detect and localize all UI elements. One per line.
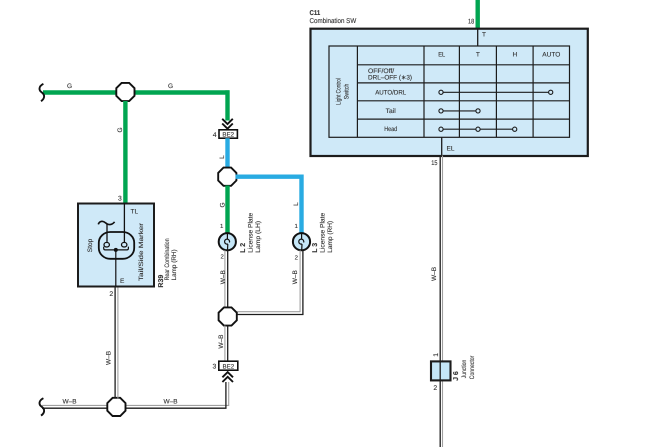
svg-text:Lamp (RH): Lamp (RH) <box>171 249 178 280</box>
svg-text:1: 1 <box>433 353 440 357</box>
svg-text:AUTO: AUTO <box>542 52 560 59</box>
svg-text:1: 1 <box>294 223 298 230</box>
svg-text:Lamp (LH): Lamp (LH) <box>255 221 262 253</box>
svg-text:License Plate: License Plate <box>319 212 326 252</box>
svg-text:Head: Head <box>384 126 397 133</box>
svg-text:2: 2 <box>295 255 299 262</box>
svg-text:W–B: W–B <box>163 399 177 406</box>
svg-text:L: L <box>219 155 226 159</box>
svg-text:License Plate: License Plate <box>248 212 255 252</box>
svg-text:L 3: L 3 <box>312 243 319 253</box>
svg-text:T: T <box>476 52 480 59</box>
svg-text:G: G <box>67 83 72 90</box>
svg-text:G: G <box>117 127 124 132</box>
svg-text:18: 18 <box>468 19 474 26</box>
svg-text:Rear Combination: Rear Combination <box>164 238 171 280</box>
svg-text:3: 3 <box>213 364 217 371</box>
svg-text:Tail/Side Marker: Tail/Side Marker <box>138 223 145 281</box>
svg-text:G: G <box>168 83 173 90</box>
svg-text:DRL–OFF (∗3): DRL–OFF (∗3) <box>368 75 412 82</box>
svg-text:Tail: Tail <box>386 108 397 115</box>
svg-text:1: 1 <box>220 223 224 230</box>
svg-text:2: 2 <box>220 254 224 261</box>
svg-text:L 2: L 2 <box>240 243 247 253</box>
svg-text:Junction: Junction <box>461 359 468 378</box>
svg-text:TL: TL <box>131 209 139 216</box>
svg-text:W–B: W–B <box>62 399 76 406</box>
svg-text:2: 2 <box>433 385 437 392</box>
svg-text:Lamp (RH): Lamp (RH) <box>327 221 334 253</box>
svg-text:Stop: Stop <box>87 238 94 252</box>
svg-text:BE2: BE2 <box>222 364 234 371</box>
svg-text:G: G <box>219 202 226 207</box>
svg-text:J 6: J 6 <box>453 371 460 381</box>
svg-text:E: E <box>120 278 125 285</box>
svg-text:3: 3 <box>118 196 122 203</box>
svg-text:W–B: W–B <box>218 335 225 349</box>
svg-text:BE2: BE2 <box>222 132 234 139</box>
svg-text:T: T <box>482 31 486 38</box>
svg-text:EL: EL <box>438 52 445 59</box>
svg-text:EL: EL <box>447 146 455 153</box>
svg-text:Connector: Connector <box>469 355 476 379</box>
svg-text:W–B: W–B <box>106 351 113 365</box>
svg-text:L: L <box>293 202 300 206</box>
svg-text:15: 15 <box>431 160 437 167</box>
svg-text:H: H <box>512 52 517 59</box>
svg-text:W–B: W–B <box>220 270 227 284</box>
svg-text:C11: C11 <box>310 10 321 17</box>
svg-text:Combination SW: Combination SW <box>310 17 357 25</box>
svg-text:AUTO/DRL: AUTO/DRL <box>375 90 406 97</box>
svg-text:2: 2 <box>109 291 113 298</box>
svg-text:W–B: W–B <box>431 267 438 281</box>
svg-text:4: 4 <box>213 132 217 139</box>
svg-text:W–B: W–B <box>292 270 299 284</box>
